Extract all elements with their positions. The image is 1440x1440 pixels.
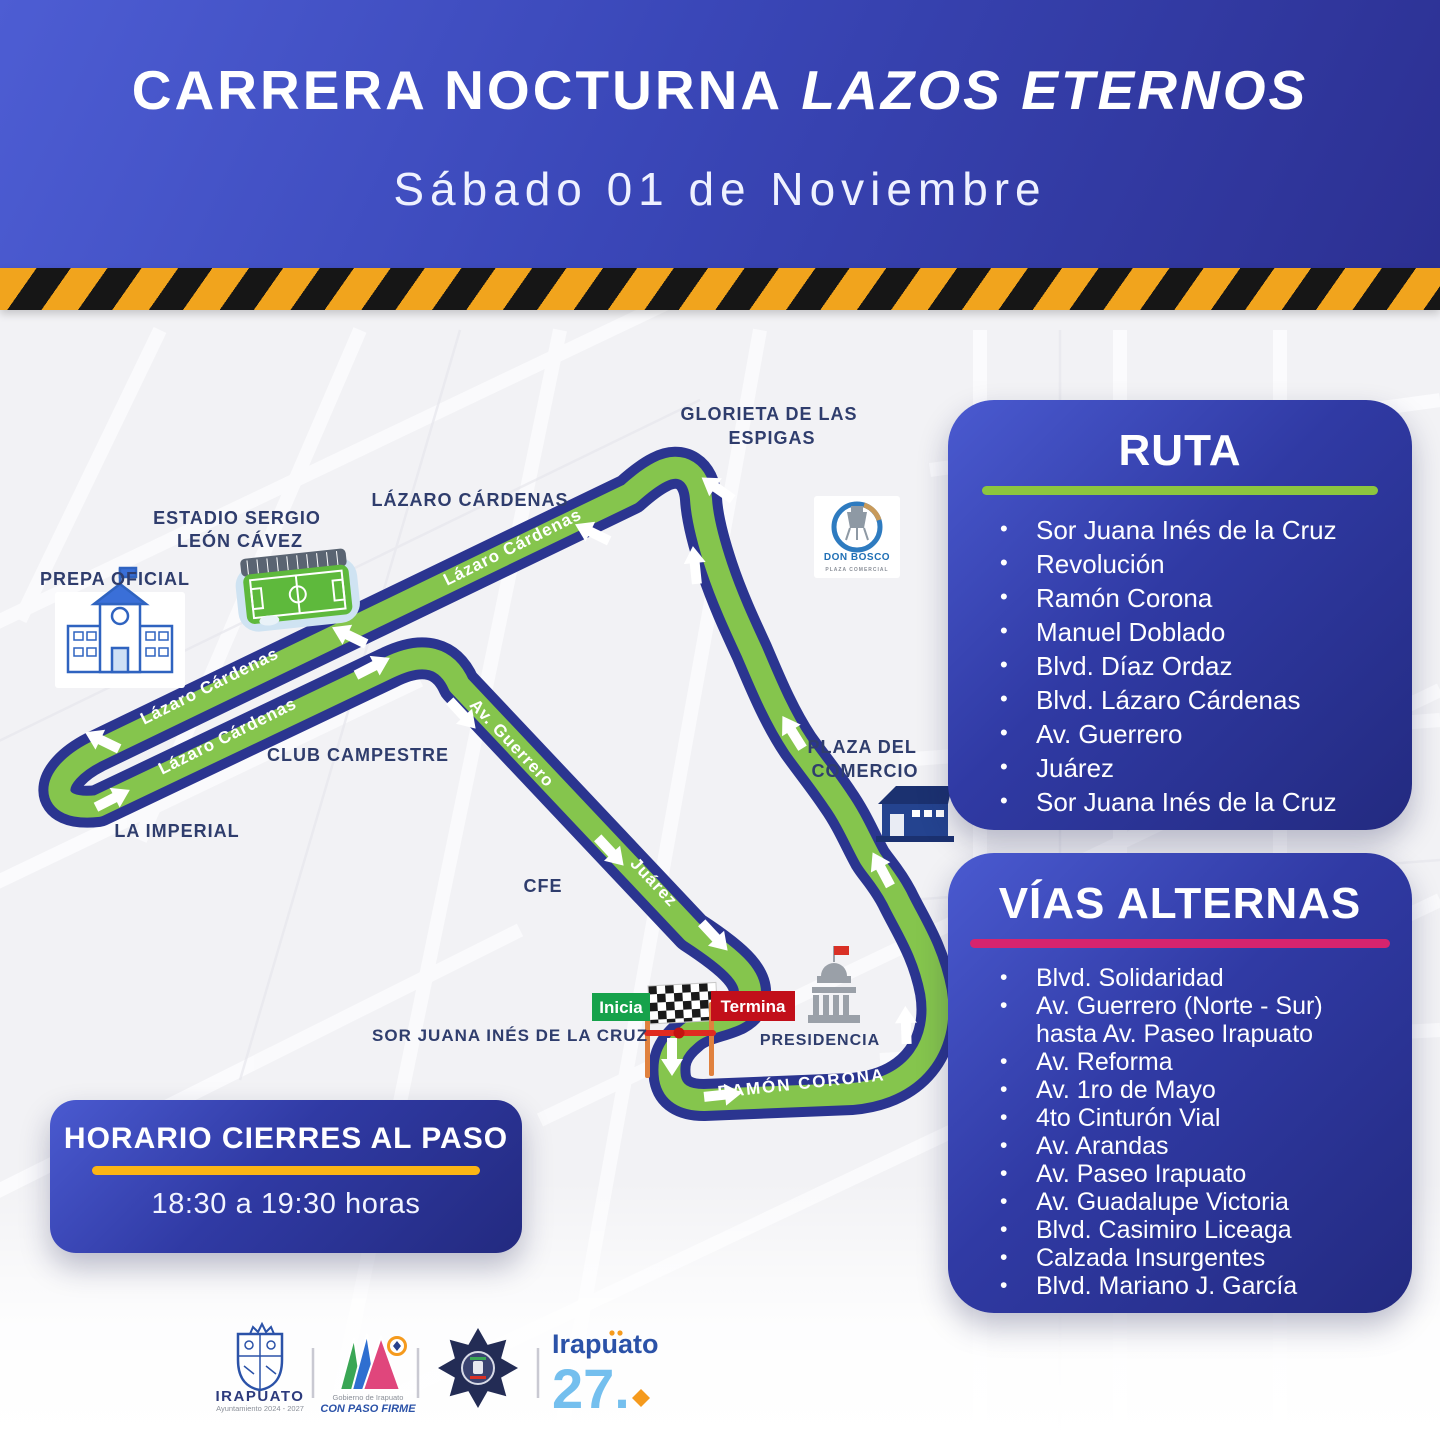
ruta-panel: RUTA Sor Juana Inés de la Cruz Revolució… — [948, 400, 1412, 830]
stadium-icon — [233, 547, 362, 633]
vias-item: Calzada Insurgentes — [1036, 1244, 1388, 1272]
vias-item: Blvd. Casimiro Liceaga — [1036, 1216, 1388, 1244]
vias-item: Av. Arandas — [1036, 1132, 1388, 1160]
ruta-underline — [982, 486, 1378, 495]
vias-item: 4to Cinturón Vial — [1036, 1104, 1388, 1132]
horario-time: 18:30 a 19:30 horas — [50, 1188, 522, 1221]
checkered-flag-icon — [648, 982, 718, 1024]
label-presidencia: PRESIDENCIA — [760, 1032, 880, 1049]
svg-text:27.: 27. — [552, 1357, 630, 1420]
vias-title: VÍAS ALTERNAS — [948, 879, 1412, 929]
ruta-item: Ramón Corona — [1036, 581, 1384, 615]
ruta-item: Manuel Doblado — [1036, 615, 1384, 649]
svg-text:PLAZA COMERCIAL: PLAZA COMERCIAL — [825, 567, 888, 573]
horario-title: HORARIO CIERRES AL PASO — [50, 1122, 522, 1156]
label-prepa: PREPA OFICIAL — [40, 569, 190, 589]
ruta-item: Sor Juana Inés de la Cruz — [1036, 513, 1384, 547]
ruta-item: Revolución — [1036, 547, 1384, 581]
ruta-item: Blvd. Lázaro Cárdenas — [1036, 683, 1384, 717]
hazard-stripe — [0, 268, 1440, 310]
label-club-campestre: CLUB CAMPESTRE — [267, 745, 449, 765]
label-glorieta: GLORIETA DE LAS ESPIGAS — [680, 404, 863, 448]
don-bosco-logo: DON BOSCO PLAZA COMERCIAL — [814, 496, 900, 578]
label-sor-juana: SOR JUANA INÉS DE LA CRUZ — [372, 1026, 648, 1045]
vias-underline — [970, 939, 1390, 948]
police-badge-icon — [438, 1328, 518, 1408]
vias-item: Av. Guerrero (Norte - Sur) hasta Av. Pas… — [1036, 992, 1388, 1048]
svg-text:Irapuato: Irapuato — [552, 1329, 659, 1359]
vias-item: Av. Reforma — [1036, 1048, 1388, 1076]
svg-text:Ayuntamiento 2024 - 2027: Ayuntamiento 2024 - 2027 — [216, 1404, 304, 1413]
svg-text:Termina: Termina — [721, 997, 786, 1016]
ruta-list: Sor Juana Inés de la Cruz Revolución Ram… — [1036, 513, 1384, 819]
svg-text:Inicia: Inicia — [599, 998, 643, 1017]
ruta-item: Blvd. Díaz Ordaz — [1036, 649, 1384, 683]
vias-item: Av. 1ro de Mayo — [1036, 1076, 1388, 1104]
vias-item: Blvd. Solidaridad — [1036, 964, 1388, 992]
svg-text:IRAPUATO: IRAPUATO — [216, 1388, 305, 1405]
ruta-item: Sor Juana Inés de la Cruz — [1036, 785, 1384, 819]
vias-item: Av. Paseo Irapuato — [1036, 1160, 1388, 1188]
header-banner: CARRERA NOCTURNA LAZOS ETERNOS Sábado 01… — [0, 0, 1440, 268]
label-cfe: CFE — [524, 876, 563, 896]
horario-panel: HORARIO CIERRES AL PASO 18:30 a 19:30 ho… — [50, 1100, 522, 1253]
event-date: Sábado 01 de Noviembre — [0, 162, 1440, 216]
start-marker: Inicia — [592, 993, 650, 1021]
label-lazaro-top: LÁZARO CÁRDENAS — [372, 489, 569, 510]
horario-underline — [92, 1166, 480, 1175]
svg-text:CON PASO FIRME: CON PASO FIRME — [320, 1403, 416, 1415]
ruta-item: Juárez — [1036, 751, 1384, 785]
vias-item: Av. Guadalupe Victoria — [1036, 1188, 1388, 1216]
finish-marker: Termina — [711, 991, 795, 1021]
vias-list: Blvd. Solidaridad Av. Guerrero (Norte - … — [1036, 964, 1388, 1300]
irapuato-coat-of-arms — [238, 1324, 282, 1390]
label-la-imperial: LA IMPERIAL — [114, 821, 239, 841]
vias-alternas-panel: VÍAS ALTERNAS Blvd. Solidaridad Av. Guer… — [948, 853, 1412, 1313]
vias-item: Blvd. Mariano J. García — [1036, 1272, 1388, 1300]
ribbon-bow — [674, 1028, 685, 1039]
ruta-item: Av. Guerrero — [1036, 717, 1384, 751]
page-title: CARRERA NOCTURNA LAZOS ETERNOS — [0, 58, 1440, 122]
event-poster: Lázaro Cárdenas Lázaro Cárdenas Lázaro C… — [0, 0, 1440, 1440]
warehouse-icon — [876, 786, 954, 842]
ruta-title: RUTA — [948, 426, 1412, 476]
svg-text:DON BOSCO: DON BOSCO — [824, 552, 890, 563]
svg-text:Gobierno de Irapuato: Gobierno de Irapuato — [333, 1393, 404, 1402]
